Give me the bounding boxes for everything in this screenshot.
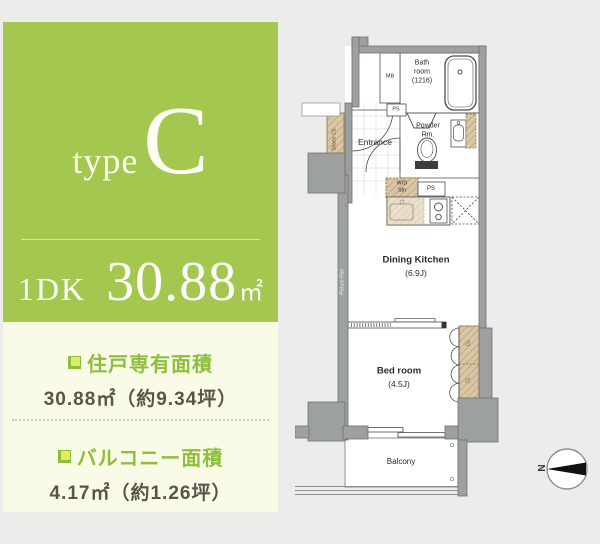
exclusive-area-title-text: 住戸専有面積 <box>87 348 213 377</box>
dining-kitchen-label: Dining Kitchen <box>382 255 449 265</box>
divider-end-post <box>442 322 447 328</box>
overhead-cupboard <box>387 197 424 225</box>
bath-room-label: room <box>414 69 430 76</box>
info-panel: type C 1DK 30.88 ㎡ 住戸専有面積 30.88㎡（約9.34坪）… <box>3 22 278 512</box>
refrigerator-space-icon <box>452 197 479 224</box>
balcony-area-title: バルコニー面積 <box>3 442 278 471</box>
type-word: type <box>72 143 138 179</box>
compass-icon <box>547 449 587 489</box>
exclusive-area-title: 住戸専有面積 <box>3 348 278 377</box>
wd-station-label: W/D <box>397 181 408 187</box>
closet-interior <box>459 326 479 402</box>
bed-room-size: (4.5J) <box>388 380 410 389</box>
powder-room-label: Powder <box>416 123 440 130</box>
entrance-label: Entrance <box>358 138 392 147</box>
balcony-railing-lines <box>295 487 465 495</box>
area-unit: ㎡ <box>239 272 263 307</box>
exclusive-area-block: 住戸専有面積 30.88㎡（約9.34坪） <box>3 348 278 411</box>
dotted-divider <box>12 419 269 421</box>
balcony-area-value: 4.17㎡（約1.26坪） <box>3 478 278 505</box>
bed-room-label: Bed room <box>377 366 421 376</box>
divider-line <box>21 239 260 240</box>
square-bullet-icon <box>68 356 81 369</box>
meter-box-label: MB <box>386 74 394 80</box>
bath-room-label: Bath <box>415 60 429 67</box>
bath-room-label: (1216) <box>412 78 432 85</box>
washbasin-icon <box>451 120 466 147</box>
balcony-area-title-text: バルコニー面積 <box>77 442 224 471</box>
floor-plan: Bath room (1216) MB PS Entrance Shoes Cb… <box>295 25 595 520</box>
linen-shelf <box>466 114 476 148</box>
area-number: 30.88 <box>106 250 237 314</box>
pipe-space-label: PS <box>427 186 435 192</box>
area-details-card: 住戸専有面積 30.88㎡（約9.34坪） バルコニー面積 4.17㎡（約1.2… <box>3 322 278 512</box>
powder-room-label: Rm. <box>422 132 435 139</box>
pipe-space-label: PS <box>392 107 399 113</box>
sliding-door-panel <box>395 319 435 323</box>
exclusive-area-value: 30.88㎡（約9.34坪） <box>3 384 278 411</box>
balcony-label: Balcony <box>387 458 415 466</box>
closet-label: CL <box>467 340 472 346</box>
square-bullet-icon <box>58 450 71 463</box>
type-heading: type C <box>3 100 278 183</box>
type-card: type C 1DK 30.88 ㎡ <box>3 22 278 322</box>
dining-kitchen-size: (6.9J) <box>405 269 427 278</box>
picture-rail-label: Picture Rail <box>341 269 346 295</box>
closet-label: CL <box>467 377 472 383</box>
layout-label: 1DK <box>18 271 86 308</box>
neighbor-structure <box>302 103 340 116</box>
shoes-cabinet-label: Shoes Cb. <box>333 127 338 150</box>
wd-station-label: Stn <box>398 188 406 194</box>
balcony-area-block: バルコニー面積 4.17㎡（約1.26坪） <box>3 442 278 505</box>
compass-north-label: N <box>538 464 548 471</box>
layout-area-row: 1DK 30.88 ㎡ <box>3 250 278 314</box>
type-letter: C <box>143 100 208 183</box>
